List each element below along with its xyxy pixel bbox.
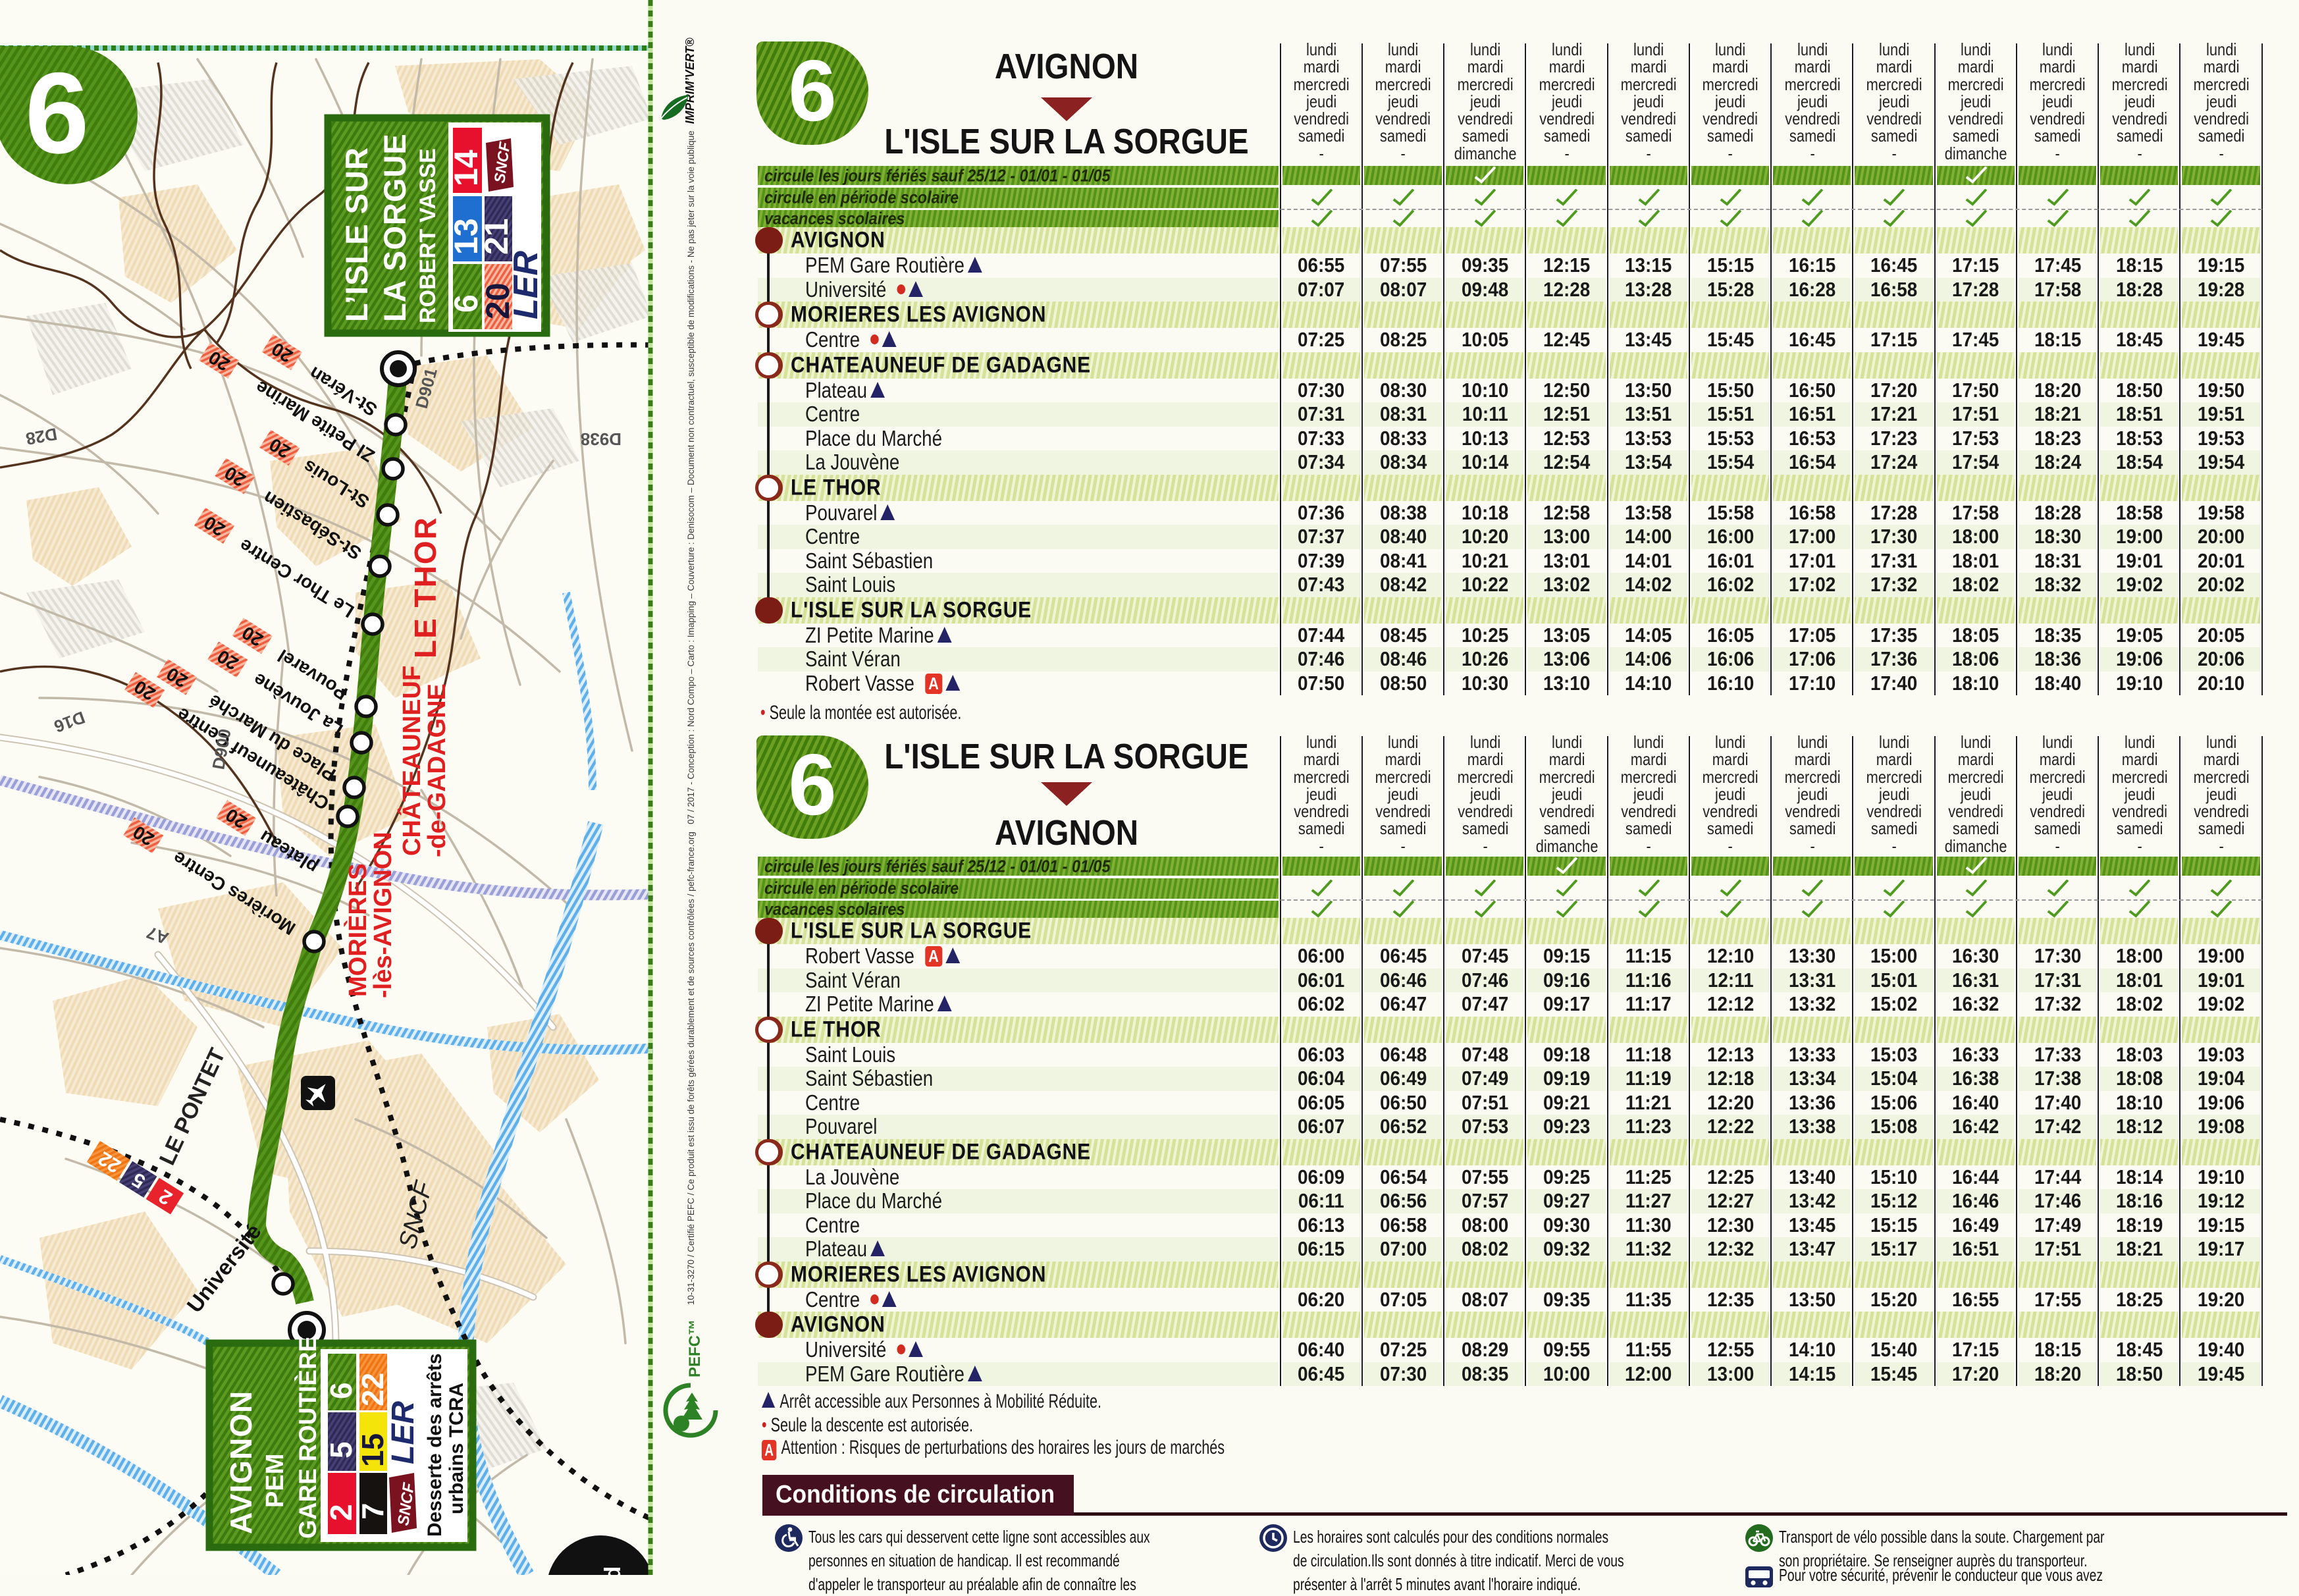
svg-text:LER: LER	[507, 251, 545, 319]
svg-text:6: 6	[324, 1382, 358, 1399]
svg-text:LA SORGUE: LA SORGUE	[377, 133, 412, 322]
svg-text:GARE ROUTIÈRE: GARE ROUTIÈRE	[294, 1336, 321, 1539]
svg-text:ROBERT VASSE: ROBERT VASSE	[415, 148, 440, 323]
svg-text:15: 15	[356, 1433, 390, 1467]
svg-text:6: 6	[25, 49, 89, 178]
svg-text:PEM: PEM	[261, 1454, 289, 1508]
svg-text:LE THOR: LE THOR	[408, 516, 442, 658]
svg-text:-lès-AVIGNON: -lès-AVIGNON	[369, 832, 397, 998]
svg-text:urbains TCRA: urbains TCRA	[446, 1383, 467, 1514]
svg-text:2: 2	[324, 1504, 358, 1521]
svg-text:7: 7	[356, 1503, 390, 1520]
svg-text:Desserte des arrêts: Desserte des arrêts	[424, 1353, 446, 1537]
svg-text:AVIGNON: AVIGNON	[224, 1391, 258, 1534]
svg-text:5: 5	[324, 1441, 358, 1458]
svg-text:21: 21	[478, 218, 515, 255]
svg-text:22: 22	[356, 1373, 390, 1406]
svg-text:-de-GADAGNE: -de-GADAGNE	[423, 683, 451, 857]
svg-text:LER: LER	[386, 1401, 421, 1464]
svg-text:L’ISLE SUR: L’ISLE SUR	[339, 147, 374, 322]
svg-text:Nord: Nord	[600, 1566, 625, 1575]
svg-text:CHÂTEAUNEUF: CHÂTEAUNEUF	[397, 666, 426, 856]
svg-text:MORIÈRES: MORIÈRES	[343, 863, 372, 997]
svg-text:D938: D938	[581, 429, 621, 449]
svg-text:14: 14	[448, 149, 485, 186]
